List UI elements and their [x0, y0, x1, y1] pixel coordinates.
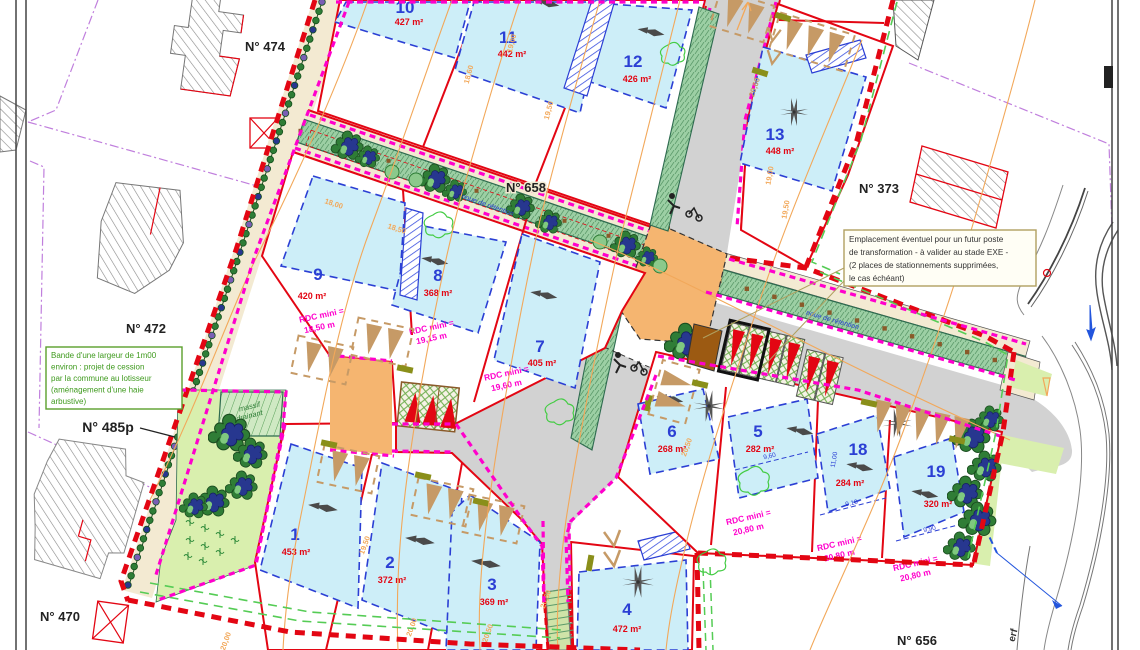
svg-text:2: 2 [385, 553, 394, 572]
svg-text:5: 5 [753, 422, 762, 441]
svg-text:369 m²: 369 m² [480, 597, 509, 607]
svg-text:19: 19 [927, 462, 946, 481]
svg-text:420 m²: 420 m² [298, 291, 327, 301]
svg-text:(2 places de stationnements su: (2 places de stationnements supprimées, [849, 261, 998, 270]
svg-text:7: 7 [535, 337, 544, 356]
svg-text:6: 6 [667, 422, 676, 441]
svg-text:N° 472: N° 472 [126, 321, 166, 336]
svg-text:N° 373: N° 373 [859, 181, 899, 196]
svg-text:N° 470: N° 470 [40, 609, 80, 624]
svg-text:N° 656: N° 656 [897, 633, 937, 648]
svg-text:3: 3 [487, 575, 496, 594]
svg-text:Bande d'une largeur de 1m00: Bande d'une largeur de 1m00 [51, 351, 157, 360]
svg-text:environ : projet de cession: environ : projet de cession [51, 363, 144, 372]
svg-text:de transformation - à valider: de transformation - à valider au stade E… [849, 248, 1009, 257]
svg-text:Emplacement éventuel pour un f: Emplacement éventuel pour un futur poste [849, 235, 1004, 244]
svg-text:448 m²: 448 m² [766, 146, 795, 156]
svg-text:426 m²: 426 m² [623, 74, 652, 84]
svg-text:472 m²: 472 m² [613, 624, 642, 634]
svg-text:le cas échéant): le cas échéant) [849, 274, 905, 283]
svg-text:N° 485p: N° 485p [82, 419, 134, 435]
svg-text:9: 9 [313, 265, 322, 284]
svg-text:405 m²: 405 m² [528, 358, 557, 368]
svg-text:453 m²: 453 m² [282, 547, 311, 557]
svg-text:427 m²: 427 m² [395, 17, 424, 27]
svg-text:4: 4 [622, 600, 632, 619]
svg-text:18: 18 [849, 440, 868, 459]
svg-text:(aménagement d'une haie: (aménagement d'une haie [51, 386, 144, 395]
svg-text:arbustive): arbustive) [51, 397, 86, 406]
svg-text:372 m²: 372 m² [378, 575, 407, 585]
svg-text:12: 12 [624, 52, 643, 71]
svg-text:N° 658: N° 658 [506, 180, 546, 195]
svg-text:N° 474: N° 474 [245, 39, 286, 54]
svg-text:13: 13 [766, 125, 785, 144]
svg-text:284 m²: 284 m² [836, 478, 865, 488]
svg-text:320 m²: 320 m² [924, 499, 953, 509]
svg-text:par la commune au lotisseur: par la commune au lotisseur [51, 374, 152, 383]
